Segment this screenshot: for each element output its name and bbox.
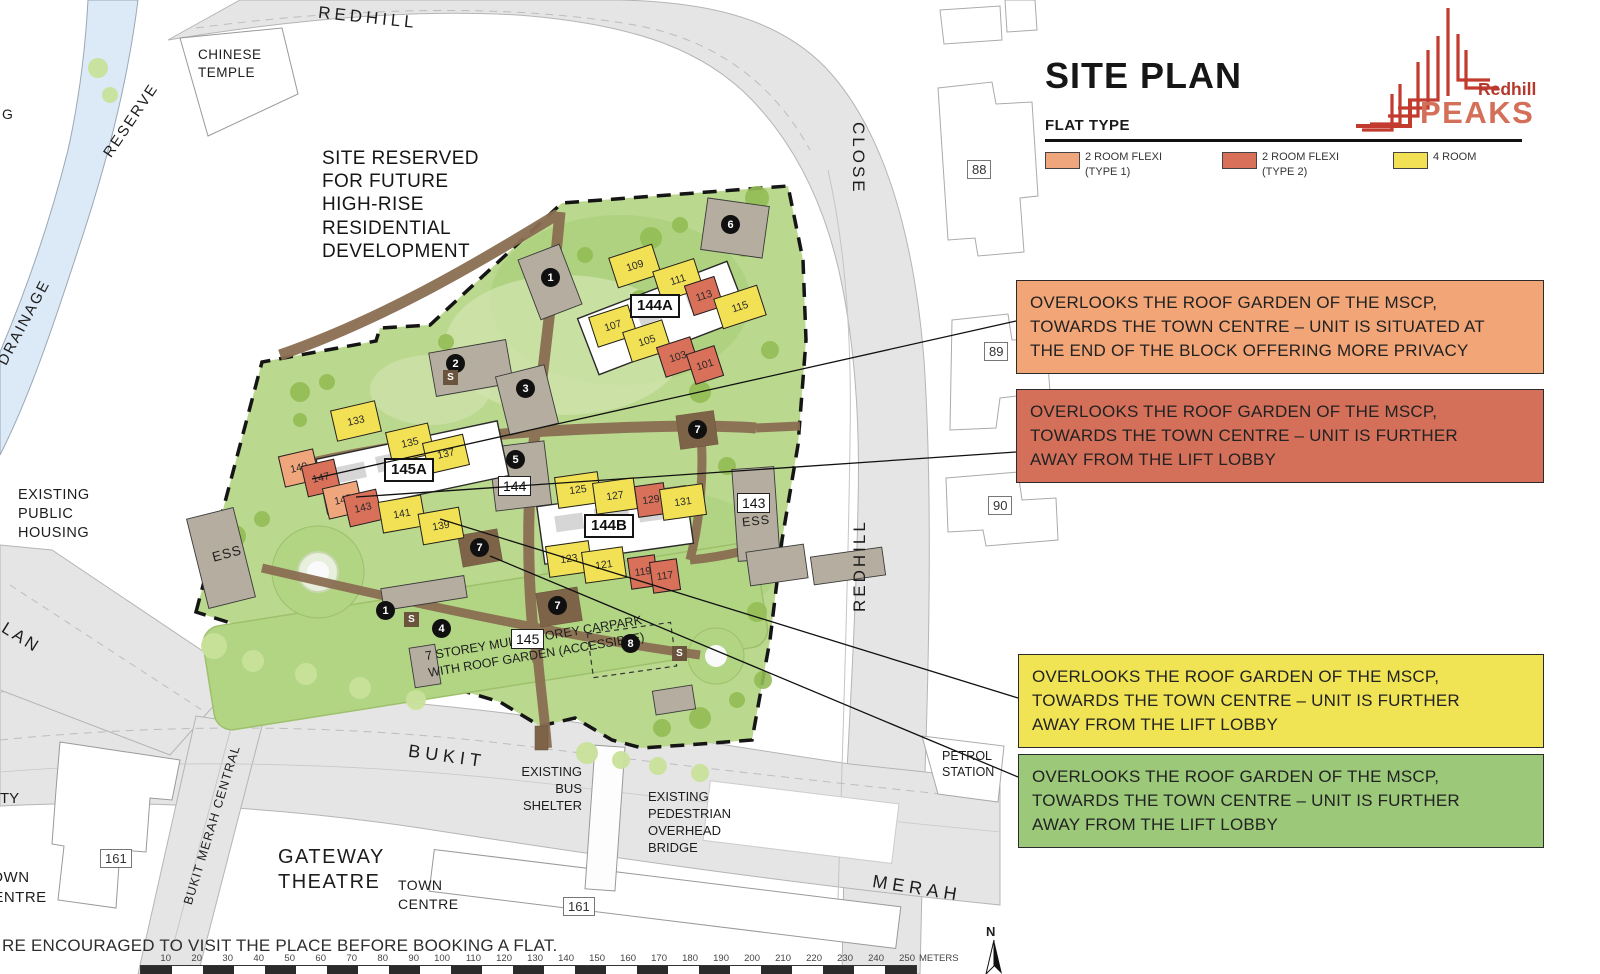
callout-type2-lift-lobby: OVERLOOKS THE ROOF GARDEN OF THE MSCP, T…: [1016, 389, 1544, 483]
road-label-redhill-right: REDHILL: [850, 519, 870, 612]
block-label-145A: 145A: [384, 458, 434, 482]
block-label-143: 143: [737, 493, 770, 513]
map-marker-1b: 1: [376, 601, 395, 620]
label-town-centre-right: TOWN CENTRE: [398, 876, 459, 914]
block-label-89: 89: [984, 342, 1008, 361]
label-ess-143: ESS: [741, 513, 770, 530]
site-plan-page: REDHILL CLOSE REDHILL BUKIT MERAH LAN BU…: [0, 0, 1600, 974]
block-label-144: 144: [498, 476, 531, 496]
block-label-88: 88: [967, 160, 991, 179]
unit-127: 127: [592, 477, 638, 515]
legend-label-4room: 4 ROOM: [1433, 150, 1543, 165]
label-site-reserved: SITE RESERVED FOR FUTURE HIGH-RISE RESID…: [322, 147, 479, 263]
map-marker-6: 6: [721, 215, 740, 234]
map-marker-s2: S: [404, 612, 419, 627]
map-marker-7c: 7: [548, 596, 567, 615]
callout-green-lift-lobby: OVERLOOKS THE ROOF GARDEN OF THE MSCP, T…: [1018, 754, 1544, 848]
block-label-90: 90: [988, 496, 1012, 515]
map-marker-3: 3: [516, 379, 535, 398]
block-label-161-left: 161: [100, 849, 132, 868]
block-label-145: 145: [511, 629, 544, 649]
block-label-144A: 144A: [630, 294, 680, 318]
map-marker-4: 4: [432, 619, 451, 638]
block-label-144B: 144B: [584, 514, 634, 538]
map-marker-s3: S: [672, 646, 687, 661]
legend-swatch-type1: [1045, 152, 1080, 169]
callout-4room-lift-lobby: OVERLOOKS THE ROOF GARDEN OF THE MSCP, T…: [1018, 654, 1544, 748]
map-marker-5: 5: [506, 450, 525, 469]
label-petrol-station: PETROL STATION: [942, 748, 994, 781]
block-label-161-bottom: 161: [563, 897, 595, 916]
page-title: SITE PLAN: [1045, 55, 1242, 97]
flat-type-divider: [1045, 139, 1522, 142]
compass-north-label: N: [986, 924, 995, 939]
label-chinese-temple: CHINESE TEMPLE: [198, 46, 262, 82]
legend-label-type2: 2 ROOM FLEXI (TYPE 2): [1262, 150, 1372, 180]
map-marker-s1: S: [443, 370, 458, 385]
unit-131: 131: [659, 483, 707, 521]
unit-121: 121: [581, 546, 627, 584]
partial-label-g: G: [2, 106, 13, 122]
flat-type-heading: FLAT TYPE: [1045, 117, 1130, 134]
legend-swatch-4room: [1393, 152, 1428, 169]
legend-swatch-type2: [1222, 152, 1257, 169]
partial-label-ty: TY: [0, 790, 19, 807]
unit-117: 117: [649, 558, 681, 594]
callout-type1-privacy: OVERLOOKS THE ROOF GARDEN OF THE MSCP, T…: [1016, 280, 1544, 374]
legend-label-type1: 2 ROOM FLEXI (TYPE 1): [1085, 150, 1195, 180]
label-existing-bus-shelter: EXISTING BUS SHELTER: [498, 764, 582, 815]
label-town-centre-left: TOWN CENTRE: [0, 868, 47, 909]
scale-bar: [140, 965, 917, 974]
label-existing-public-housing: EXISTING PUBLIC HOUSING: [18, 486, 90, 543]
logo-text-peaks: PEAKS: [1420, 95, 1534, 131]
map-marker-7b: 7: [470, 538, 489, 557]
map-marker-8: 8: [621, 634, 640, 653]
road-label-close: CLOSE: [848, 122, 868, 195]
label-gateway-theatre: GATEWAY THEATRE: [278, 845, 385, 895]
map-marker-7a: 7: [688, 420, 707, 439]
map-marker-1: 1: [541, 268, 560, 287]
label-existing-pedestrian-overhead-bridge: EXISTING PEDESTRIAN OVERHEAD BRIDGE: [648, 788, 731, 857]
scale-bar-values: 1020304050607080901001101201301401501601…: [140, 948, 959, 966]
